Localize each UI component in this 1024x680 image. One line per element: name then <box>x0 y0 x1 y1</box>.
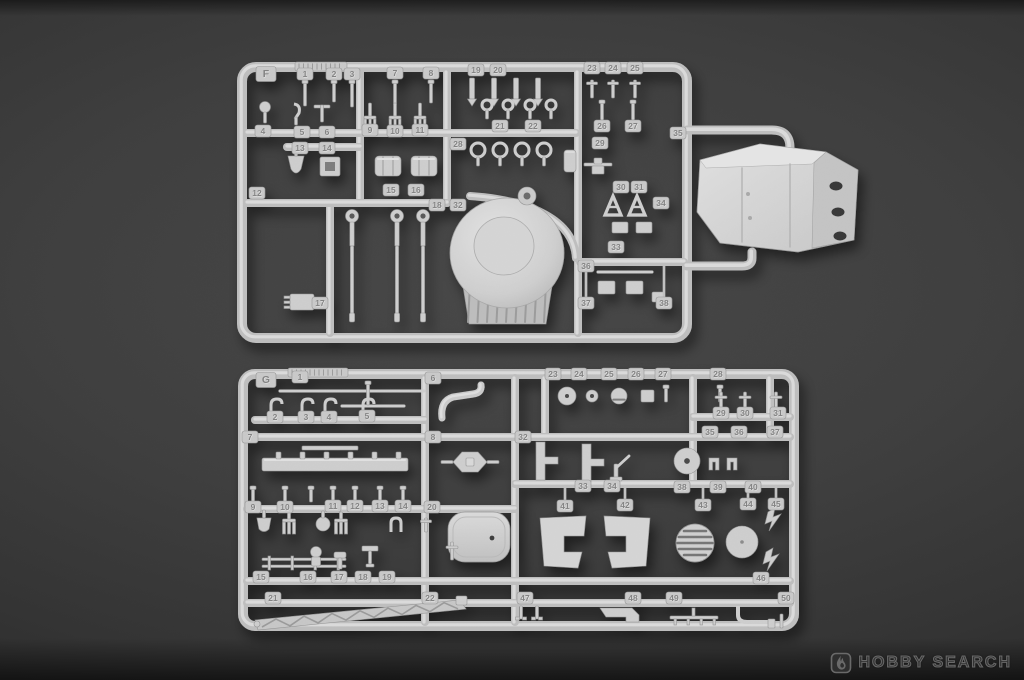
product-photo: FF11223344556677889910101111121213131414… <box>0 0 1024 680</box>
film-grain-overlay <box>0 0 1024 680</box>
watermark-text: HOBBY SEARCH <box>859 654 1013 672</box>
sprue-photo-canvas: FF11223344556677889910101111121213131414… <box>0 0 1024 680</box>
hobby-search-flame-icon <box>830 652 852 674</box>
watermark: HOBBY SEARCH <box>830 652 1013 674</box>
